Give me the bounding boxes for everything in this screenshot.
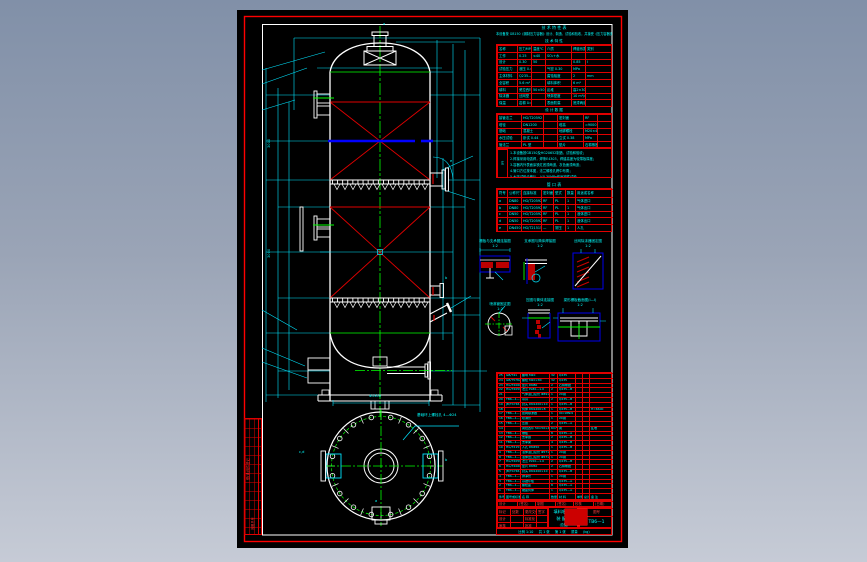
table-cell: 焊缝系数 xyxy=(571,45,585,52)
revision-strip-label: 借(通)用件登记 xyxy=(247,458,250,480)
table-cell: 气体出口 xyxy=(575,204,613,211)
table-cell: 1 xyxy=(565,211,575,218)
table-cell: 校核 xyxy=(573,501,593,506)
table-cell: 填料体积 xyxy=(545,79,571,86)
table-cell: d xyxy=(497,217,507,224)
table-cell: 垫片 xyxy=(557,141,583,148)
table-cell: MPa xyxy=(571,65,585,72)
design-table-title: 技 术 特 性 表 xyxy=(496,24,612,31)
table-cell: HG/T20592 xyxy=(521,217,541,224)
table-cell: PL xyxy=(553,211,565,218)
table-cell: 连接标准 xyxy=(521,189,541,197)
table-cell: SO₂+水 xyxy=(545,52,571,59)
table-cell: 液压 0.44 xyxy=(517,65,531,72)
title-block-left-grid: 标记处数更改文件号签字设计标准化审核批准 xyxy=(496,507,548,528)
table-cell: 类别 xyxy=(585,45,611,52)
table-cell: 液体进口 xyxy=(575,211,613,218)
table-cell: 公称尺寸 xyxy=(507,189,521,197)
table-cell: 常压 xyxy=(553,224,565,231)
detail-caption-5: 压圈与筒体连接图1:2 xyxy=(520,298,560,308)
weld-detail-a xyxy=(480,248,510,280)
table-cell: 卧试 0.44 xyxy=(521,134,543,141)
table-cell: 1 xyxy=(565,204,575,211)
table-cell: 温度℃ xyxy=(531,45,545,52)
detail-caption-1: 栅板与支承圈连接图1:2 xyxy=(471,239,519,249)
table-cell xyxy=(597,128,611,135)
table-cell: 制图 xyxy=(535,501,555,506)
table-cell: 除沫器 xyxy=(497,93,517,100)
table-cell xyxy=(543,121,557,128)
table-cell: (日期) xyxy=(593,501,613,506)
table-cell: 数量 xyxy=(565,189,575,197)
table-cell: 全容积 xyxy=(497,79,517,86)
table-cell: HG/T21515 xyxy=(521,224,541,231)
table-cell xyxy=(510,515,523,522)
weld-detail-e xyxy=(522,310,550,338)
notes-label: 注 xyxy=(497,149,507,177)
vessel-elevation-view xyxy=(300,26,452,416)
detail-caption-2: 支承圈与筒体焊接图1:2 xyxy=(518,239,562,249)
technical-notes: 1.本设备按GB150及HG20652制造、试验和验收； 2.焊接采用电弧焊，焊… xyxy=(507,149,611,177)
table-cell xyxy=(543,114,557,121)
table-cell: 液体出口 xyxy=(575,217,613,224)
table-cell: 密封面 xyxy=(541,189,553,197)
table-cell: 腐蚀裕度 xyxy=(545,72,571,79)
table-cell xyxy=(597,141,611,148)
table-cell: 气密 0.30 xyxy=(545,65,571,72)
detail-caption-6: 梁形栅板截面图(Ⅰ—Ⅰ)1:2 xyxy=(557,298,603,308)
table-cell: 主体材料 xyxy=(497,72,517,79)
table-cell: 2 xyxy=(571,72,585,79)
plan-dim-label: Φ1300 xyxy=(369,395,381,399)
table-cell: DN1200 xyxy=(521,121,543,128)
table-cell: PL xyxy=(553,217,565,224)
table-cell: 人孔 xyxy=(575,224,613,231)
side-nozzle-right xyxy=(430,284,444,298)
table-cell: 用途或名称 xyxy=(575,189,613,197)
table-cell: 瓷拉西环 xyxy=(517,86,531,93)
table-cell: 水压试验 xyxy=(497,134,521,141)
table-cell xyxy=(585,99,611,106)
table-cell: 接管法兰 xyxy=(497,114,521,121)
table-cell: 气体进口 xyxy=(575,197,613,204)
table-cell: 岩棉 δ=50 xyxy=(517,99,531,106)
table-cell: 丝网型 xyxy=(517,93,531,100)
table-cell: 设计 xyxy=(497,501,517,506)
table-cell: 设计 xyxy=(497,515,510,522)
table-cell: DN450 xyxy=(507,224,521,231)
table-cell: DN50 xyxy=(507,217,521,224)
table-cell: 设计 xyxy=(497,59,517,66)
table-cell: 50 xyxy=(531,59,545,66)
table-cell: 填料 xyxy=(497,86,517,93)
desktop-background: 借(通)用件登记 底图总号 技 术 特 性 表 本设备按 GB150《钢制压力容… xyxy=(0,0,867,562)
revision-strip-label2: 底图总号 xyxy=(252,517,255,530)
nozzle-mark-manhole: e xyxy=(450,160,452,164)
table-cell: 1 xyxy=(565,224,575,231)
table-cell: 喷淋密度 xyxy=(545,93,571,100)
table-cell: HG/T20592 xyxy=(521,204,541,211)
table-cell: (签名) xyxy=(517,501,535,506)
table-cell: (签名) xyxy=(555,501,573,506)
table-cell: 基础 xyxy=(497,128,521,135)
table-cell: 压力MPa xyxy=(517,45,531,52)
bolt-hole xyxy=(420,491,425,496)
table-cell: 石棉橡胶 xyxy=(583,141,597,148)
table-cell: Q235—B xyxy=(517,72,531,79)
table-cell xyxy=(531,99,545,106)
table-cell: 混凝土 xyxy=(521,128,543,135)
table-cell: b xyxy=(497,204,507,211)
table-cell: MPa xyxy=(583,134,597,141)
table-cell: 高2×3000 xyxy=(571,86,585,93)
weld-detail-b xyxy=(524,258,547,284)
plan-label-left: c,d xyxy=(299,451,304,455)
table-cell: 介质 xyxy=(545,45,571,52)
table-cell xyxy=(531,93,545,100)
flange-tick xyxy=(344,499,349,504)
bolt-hole xyxy=(338,436,343,441)
table-cell: 名称 xyxy=(497,45,517,52)
flange-tick xyxy=(361,417,364,424)
table-cell: 底漆两道 xyxy=(571,99,585,106)
nozzle-table-grid: 符号公称尺寸连接标准密封面型式数量用途或名称aDN80HG/T20592RFPL… xyxy=(496,188,612,232)
table-cell: 0.85 xyxy=(571,59,585,66)
table-cell: 密封面 xyxy=(557,114,583,121)
table-cell: 地脚螺栓 xyxy=(557,128,583,135)
table-cell: 塔高 xyxy=(557,121,583,128)
table-cell: 管法兰 xyxy=(497,141,521,148)
table-cell xyxy=(597,114,611,121)
table-cell: mm xyxy=(585,72,611,79)
plan-leader-label: 基础环上螺栓孔 4—Φ24 xyxy=(417,414,457,418)
table-cell: 1 xyxy=(565,217,575,224)
table-cell: 标准化 xyxy=(523,515,536,522)
table-cell: 1 xyxy=(565,197,575,204)
skirt-access xyxy=(308,358,330,383)
table-cell: RF xyxy=(541,197,553,204)
manhole-nozzle xyxy=(430,168,449,191)
weld-detail-c xyxy=(573,249,603,289)
design-table-grid2: 接管法兰HG/T20592密封面RF塔径DN1200塔高≈9000基础混凝土地脚… xyxy=(496,113,612,148)
table-cell xyxy=(571,52,585,59)
table-cell: 表面防腐 xyxy=(545,99,571,106)
table-cell: 50×50×4.5 xyxy=(531,86,545,93)
nozzle-mark-right: b xyxy=(445,277,447,281)
table-cell xyxy=(531,65,545,72)
table-cell: 型式 xyxy=(553,189,565,197)
table-cell xyxy=(597,121,611,128)
table-cell: 符号 xyxy=(497,189,507,197)
table-cell: 试验压力 xyxy=(497,65,517,72)
title-block-bottom-line: 比例 1:10 共 1 张 第 1 张 质量 (kg) xyxy=(496,528,612,535)
table-cell: 乱堆 xyxy=(545,86,571,93)
table-cell: 工作 xyxy=(497,52,517,59)
table-cell: HG/T20592 xyxy=(521,211,541,218)
table-cell: DN80 xyxy=(507,204,521,211)
table-cell xyxy=(585,79,611,86)
flange-tick xyxy=(414,429,419,434)
table-cell xyxy=(585,93,611,100)
table-cell: HG/T20592 xyxy=(521,114,543,121)
table-cell: RF xyxy=(541,217,553,224)
table-cell: PL xyxy=(553,204,565,211)
flange-tick xyxy=(332,446,339,449)
table-cell: 处数 xyxy=(510,508,523,515)
signature-row: 设计(签名)制图(签名)校核(日期) xyxy=(496,500,612,507)
table-cell: HG/T20592 xyxy=(521,197,541,204)
table-cell xyxy=(531,72,545,79)
vessel-plan-view xyxy=(321,400,459,526)
support-lug-lower xyxy=(300,207,330,251)
table-cell: 10 m³/m²h xyxy=(571,93,585,100)
table-cell xyxy=(597,134,611,141)
approval-stamp xyxy=(565,509,587,525)
table-cell: e xyxy=(497,224,507,231)
table-cell: 塔径 xyxy=(497,121,521,128)
table-cell: 5.6 m³ xyxy=(517,79,531,86)
table-cell: 保温 xyxy=(497,99,517,106)
dimension-lines xyxy=(262,38,487,412)
angled-nozzle xyxy=(430,303,451,322)
table-cell: 更改文件号 xyxy=(523,508,536,515)
detail-caption-4: 喷淋管固定图1:2 xyxy=(482,302,518,312)
cad-drawing-canvas[interactable]: 借(通)用件登记 底图总号 技 术 特 性 表 本设备按 GB150《钢制压力容… xyxy=(237,10,628,548)
plan-label-bottom: a xyxy=(375,500,377,504)
design-table-grid1: 名称压力MPa温度℃介质焊缝系数类别工作0.25≤40SO₂+水设计0.3050… xyxy=(496,44,612,107)
table-cell: DN50 xyxy=(507,211,521,218)
table-cell: 6 m³ xyxy=(571,79,585,86)
flange-tick xyxy=(424,484,431,487)
table-cell xyxy=(585,86,611,93)
bill-of-materials: 25GB/T41螺母 M2032Q23524GB/T5782螺栓 M20×803… xyxy=(496,372,612,500)
table-cell: 0.30 xyxy=(517,59,531,66)
table-cell: Ⅰ xyxy=(585,59,611,66)
table-cell: DN80 xyxy=(507,197,521,204)
table-cell: c xyxy=(497,211,507,218)
table-cell: M20×4 xyxy=(583,128,597,135)
table-cell: 0.25 xyxy=(517,52,531,59)
bolt-hole xyxy=(351,423,356,428)
table-cell xyxy=(543,141,557,148)
table-cell: a xyxy=(497,197,507,204)
weld-detail-f xyxy=(553,308,606,341)
table-cell: RF xyxy=(583,114,597,121)
flange-tick xyxy=(399,509,402,516)
design-table-note: 本设备按 GB150《钢制压力容器》设计、制造、试验和验收，并接受《压力容器安全… xyxy=(496,31,612,38)
bolt-hole xyxy=(406,505,411,510)
table-cell: 标记 xyxy=(497,508,510,515)
table-cell xyxy=(585,52,611,59)
nozzle-mark-top: a xyxy=(383,23,385,27)
table-cell xyxy=(545,59,571,66)
table-cell: RF xyxy=(541,204,553,211)
dim-label-upper: 3000 xyxy=(268,139,272,148)
table-cell: ≤40 xyxy=(531,52,545,59)
table-cell: 立试 0.38 xyxy=(557,134,583,141)
table-cell: RF xyxy=(541,211,553,218)
plan-leader-line xyxy=(403,426,459,440)
table-cell: PL 型 xyxy=(521,141,543,148)
table-cell xyxy=(543,128,557,135)
table-cell: ≈9000 xyxy=(583,121,597,128)
table-cell xyxy=(543,134,557,141)
table-cell xyxy=(531,79,545,86)
plan-label-right: b xyxy=(445,459,447,463)
table-cell xyxy=(585,65,611,72)
table-cell: PL xyxy=(553,197,565,204)
dim-label-lower: 3000 xyxy=(268,249,272,258)
table-cell: — xyxy=(541,224,553,231)
detail-caption-3: 丝网除沫器固定图1:2 xyxy=(565,239,611,249)
